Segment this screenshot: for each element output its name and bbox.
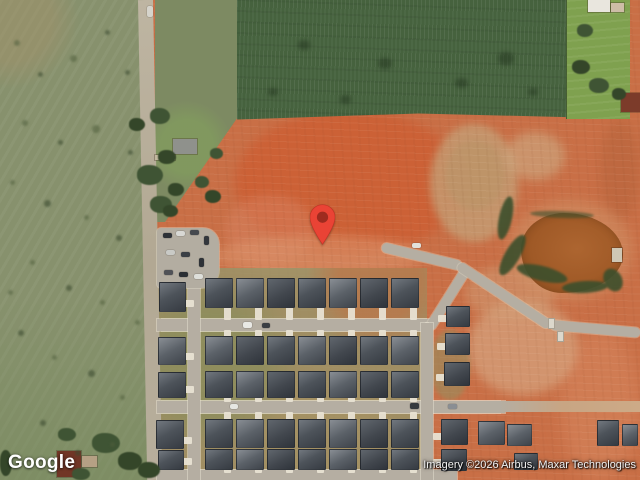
house xyxy=(446,306,470,327)
house xyxy=(298,336,326,365)
house xyxy=(159,282,186,312)
car xyxy=(410,403,419,409)
tree xyxy=(137,165,163,185)
structure xyxy=(82,456,97,467)
pasture-scrub xyxy=(120,395,125,400)
car xyxy=(163,233,172,238)
crop-field xyxy=(237,0,567,122)
tree xyxy=(572,60,590,74)
house xyxy=(267,336,295,365)
house xyxy=(329,371,357,398)
pasture-scrub xyxy=(38,72,43,77)
house xyxy=(444,362,470,386)
house xyxy=(360,419,388,448)
pasture-scrub xyxy=(70,55,77,62)
pasture-scrub xyxy=(44,200,51,207)
house xyxy=(298,449,326,470)
tree xyxy=(205,190,221,203)
structure xyxy=(588,0,610,12)
house xyxy=(267,278,295,308)
car xyxy=(230,404,238,409)
house xyxy=(267,419,295,448)
car xyxy=(412,243,421,248)
street-vertical-2 xyxy=(421,323,433,480)
structure xyxy=(173,139,197,154)
tree xyxy=(195,176,209,188)
house xyxy=(360,449,388,470)
tree xyxy=(612,88,626,100)
car xyxy=(147,6,153,17)
car xyxy=(179,272,188,277)
pasture-scrub xyxy=(116,235,122,241)
pasture-scrub xyxy=(100,300,105,305)
pasture-scrub xyxy=(88,370,95,377)
house xyxy=(360,278,388,308)
house xyxy=(391,336,419,365)
car xyxy=(176,231,185,236)
tree xyxy=(150,108,170,124)
house xyxy=(236,449,264,470)
house xyxy=(205,336,233,365)
house xyxy=(622,424,638,446)
house xyxy=(158,450,184,470)
portable-toilet xyxy=(557,331,564,342)
pasture-scrub xyxy=(22,120,28,126)
house xyxy=(445,333,470,355)
house xyxy=(391,371,419,398)
car xyxy=(448,404,457,409)
tree xyxy=(589,78,609,93)
driveway xyxy=(379,306,386,320)
tree xyxy=(168,183,184,196)
pasture-scrub xyxy=(135,320,140,325)
house xyxy=(236,419,264,448)
driveway xyxy=(224,306,231,320)
house xyxy=(236,336,264,365)
house xyxy=(391,278,419,308)
map-pin-marker[interactable] xyxy=(310,204,335,245)
pasture-scrub xyxy=(105,30,110,35)
house xyxy=(205,449,233,470)
tree xyxy=(577,24,593,37)
house xyxy=(360,336,388,365)
house xyxy=(205,419,233,448)
house xyxy=(597,420,619,446)
car xyxy=(262,323,270,328)
pasture-scrub xyxy=(92,125,100,133)
car xyxy=(181,252,190,257)
house xyxy=(158,372,186,398)
structure xyxy=(612,248,622,262)
pasture-scrub xyxy=(14,40,20,46)
house xyxy=(329,278,357,308)
car xyxy=(199,258,204,267)
tree xyxy=(138,462,160,478)
house xyxy=(298,278,326,308)
house xyxy=(205,278,233,308)
pasture-scrub xyxy=(30,260,35,265)
google-logo[interactable]: Google xyxy=(8,452,75,474)
pasture-scrub xyxy=(110,442,115,447)
house xyxy=(298,371,326,398)
car xyxy=(194,274,203,279)
field-spot xyxy=(298,40,310,50)
house xyxy=(391,449,419,470)
house xyxy=(298,419,326,448)
pasture-scrub xyxy=(66,285,72,291)
car xyxy=(166,250,175,255)
pasture-scrub xyxy=(40,420,46,426)
field-spot xyxy=(340,95,351,104)
tree xyxy=(129,118,145,131)
car xyxy=(204,236,209,245)
pasture-scrub xyxy=(125,70,130,75)
house xyxy=(236,278,264,308)
pasture-scrub xyxy=(128,150,133,155)
pasture-scrub xyxy=(58,140,63,145)
house xyxy=(391,419,419,448)
house xyxy=(156,420,184,449)
pasture-scrub xyxy=(8,290,13,295)
portable-toilet xyxy=(548,318,555,329)
driveway xyxy=(286,306,293,320)
tree xyxy=(163,205,178,217)
pasture-scrub xyxy=(18,330,24,336)
tree xyxy=(92,433,120,453)
driveway xyxy=(348,306,355,320)
house xyxy=(329,419,357,448)
driveway xyxy=(255,306,262,320)
house xyxy=(205,371,233,398)
driveway xyxy=(317,306,324,320)
house xyxy=(236,371,264,398)
pasture-scrub xyxy=(52,355,57,360)
car xyxy=(243,322,252,328)
car xyxy=(190,230,199,235)
house xyxy=(507,424,532,446)
field-spot xyxy=(528,88,538,96)
pasture-scrub xyxy=(75,450,81,456)
pin-core xyxy=(317,212,328,223)
house xyxy=(267,371,295,398)
dirt-road-east xyxy=(500,401,640,412)
house xyxy=(158,337,186,365)
car xyxy=(164,270,173,275)
house xyxy=(441,419,468,445)
imagery-attribution: Imagery ©2026 Airbus, Maxar Technologies xyxy=(423,459,636,471)
field-spot xyxy=(498,52,514,65)
pasture-scrub xyxy=(10,180,15,185)
field-spot xyxy=(268,88,278,96)
tree xyxy=(158,150,176,164)
tree xyxy=(210,148,223,159)
house xyxy=(329,449,357,470)
map-canvas[interactable]: Google Imagery ©2026 Airbus, Maxar Techn… xyxy=(0,0,640,480)
house xyxy=(478,421,505,445)
house xyxy=(267,449,295,470)
tree xyxy=(58,428,76,441)
pin-body xyxy=(310,205,335,245)
house xyxy=(329,336,357,365)
driveway xyxy=(410,306,417,320)
pasture-scrub xyxy=(84,215,89,220)
structure xyxy=(611,3,624,12)
house xyxy=(360,371,388,398)
